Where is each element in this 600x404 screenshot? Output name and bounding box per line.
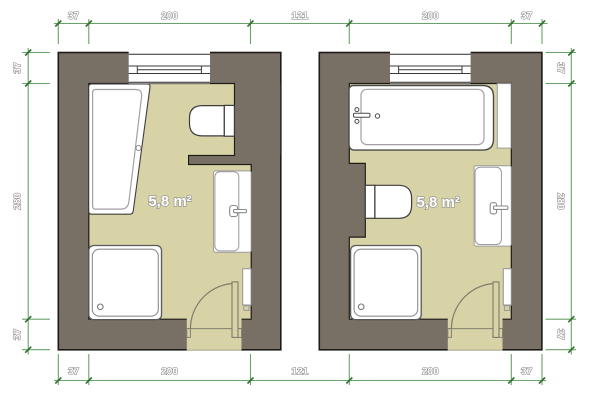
svg-text:5,8 m²: 5,8 m²	[148, 193, 191, 210]
svg-text:280: 280	[555, 193, 566, 210]
svg-text:5,8 m²: 5,8 m²	[417, 194, 460, 211]
svg-text:37: 37	[68, 11, 80, 22]
svg-text:200: 200	[422, 367, 439, 378]
svg-text:37: 37	[555, 329, 566, 341]
svg-text:200: 200	[161, 367, 178, 378]
svg-text:37: 37	[68, 367, 80, 378]
svg-text:37: 37	[521, 11, 533, 22]
svg-text:200: 200	[161, 11, 178, 22]
svg-text:200: 200	[422, 11, 439, 22]
svg-text:121: 121	[292, 367, 309, 378]
svg-text:37: 37	[13, 62, 24, 74]
svg-text:37: 37	[13, 328, 24, 340]
svg-text:121: 121	[292, 11, 309, 22]
svg-text:280: 280	[13, 193, 24, 210]
svg-text:37: 37	[521, 367, 533, 378]
svg-text:37: 37	[555, 62, 566, 74]
